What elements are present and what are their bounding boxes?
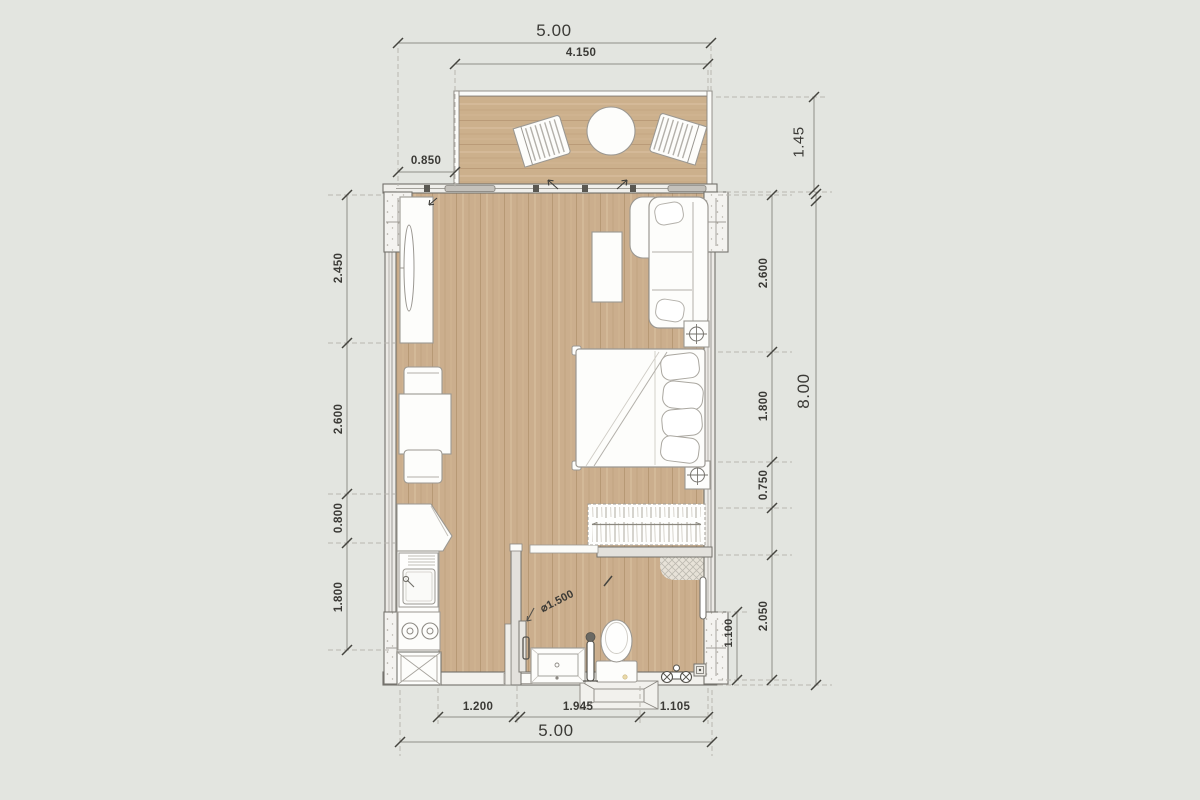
candle <box>623 675 627 679</box>
dim-right-total: 8.00 <box>794 373 814 409</box>
grab-bar <box>700 577 706 619</box>
dim-right-2: 0.750 <box>758 470 770 500</box>
dining-table <box>399 394 451 454</box>
coffee-table <box>592 232 622 302</box>
dim-top-balcony: 4.150 <box>566 47 596 59</box>
refrigerator <box>397 652 441 685</box>
wardrobe <box>588 504 705 545</box>
dining-chair-bottom <box>404 450 442 483</box>
floor-plan-canvas: 5.00 4.150 0.850 1.45 2.450 2.600 0.800 … <box>0 0 1200 800</box>
side-table-top <box>684 321 709 347</box>
dim-bottom-0: 1.200 <box>463 701 493 713</box>
floor-plan-drawing <box>0 0 1200 800</box>
dim-right-3: 2.050 <box>758 601 770 631</box>
dim-left-3: 1.800 <box>333 582 345 612</box>
balcony-table <box>587 107 635 155</box>
dim-left-0: 2.450 <box>333 253 345 283</box>
left-wall <box>385 192 396 672</box>
dim-bottom-1: 1.945 <box>563 701 593 713</box>
dim-right-1: 1.800 <box>758 391 770 421</box>
dim-left-1: 2.600 <box>333 404 345 434</box>
dim-bottom-total: 5.00 <box>538 721 574 741</box>
cooktop <box>398 612 440 650</box>
sliding-door <box>383 184 717 193</box>
dim-top-left-offset: 0.850 <box>411 155 441 167</box>
dining-chair-top <box>404 367 442 398</box>
dim-bottom-2: 1.105 <box>660 701 690 713</box>
dim-balcony-depth: 1.45 <box>791 126 808 157</box>
dim-right-inner: 1.100 <box>723 618 735 647</box>
bed <box>572 346 705 470</box>
dim-top-total: 5.00 <box>536 21 572 41</box>
kitchen-sink <box>399 553 438 607</box>
dim-right-0: 2.600 <box>758 258 770 288</box>
dim-left-2: 0.800 <box>333 503 345 533</box>
vanity-sink <box>531 648 585 683</box>
floor-drain <box>694 664 706 676</box>
